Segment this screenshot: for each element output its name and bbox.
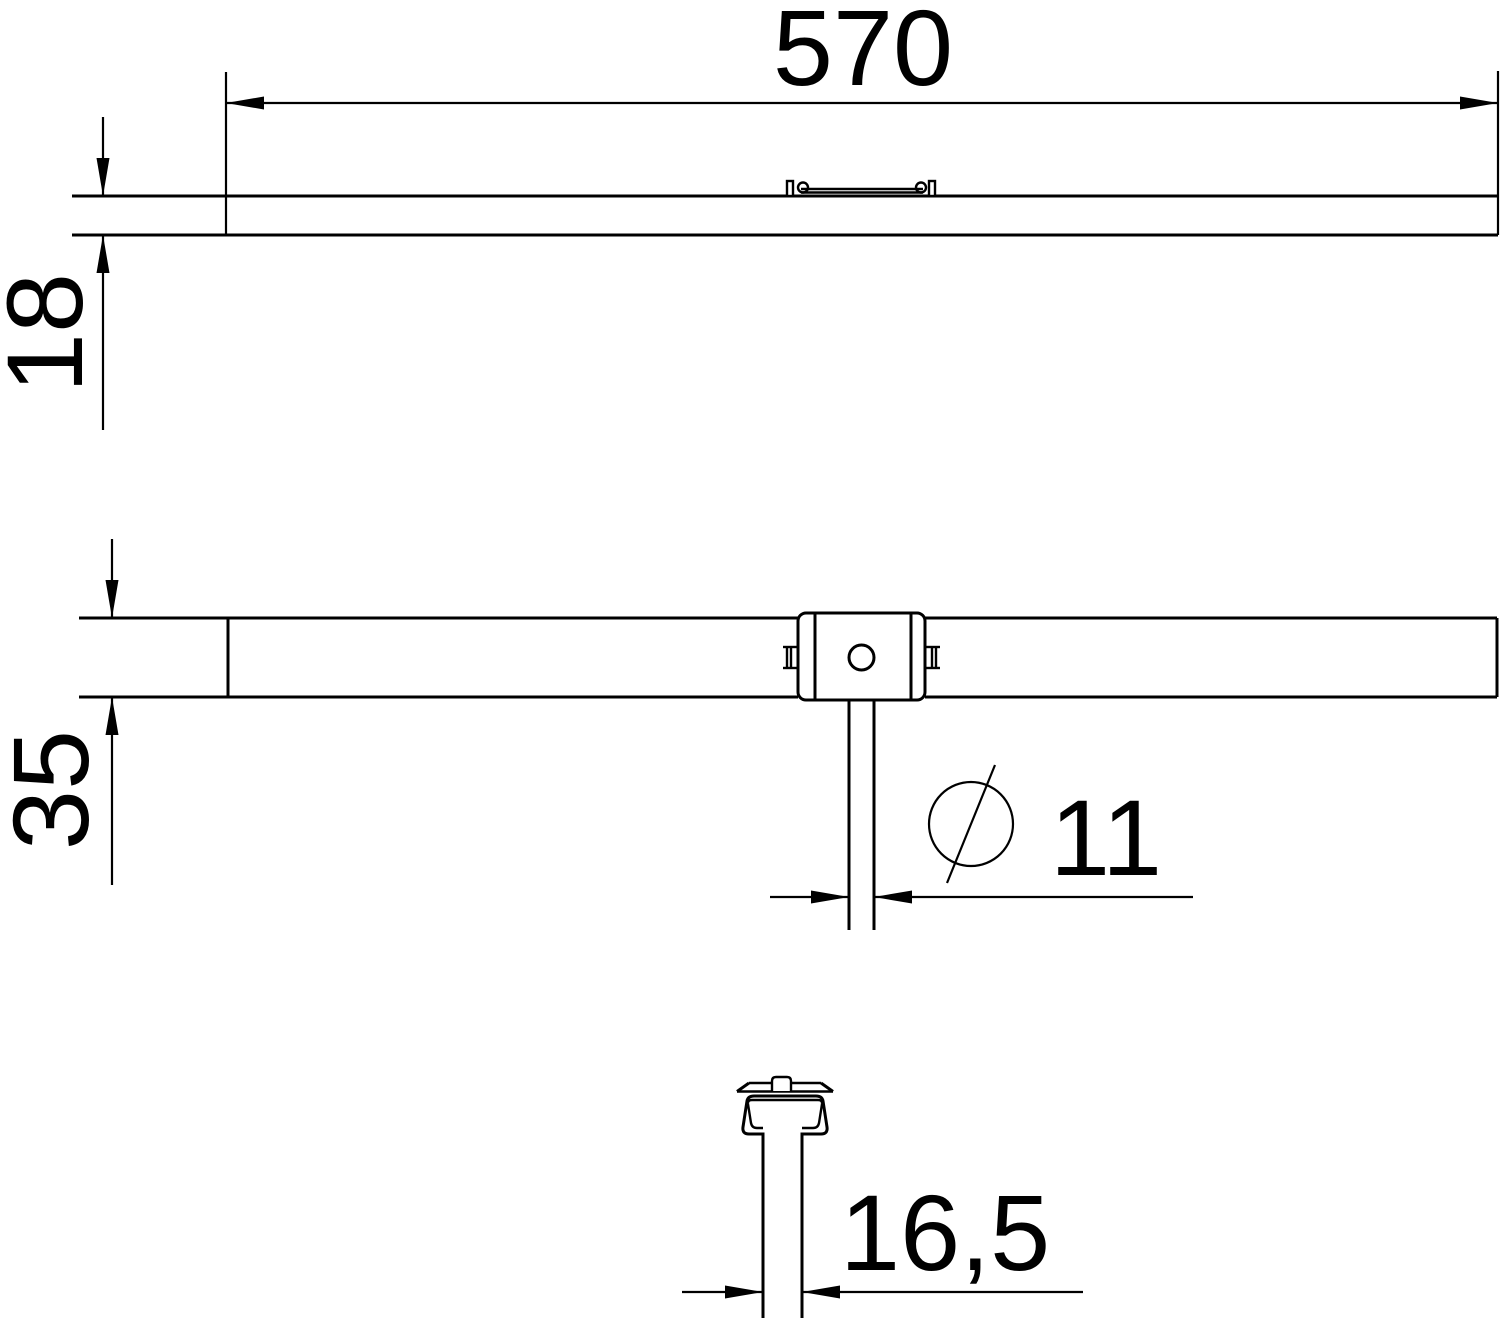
block-rod-hole: [849, 645, 874, 670]
clip-right-tab: [929, 181, 935, 196]
side-view: 570 18: [0, 0, 1498, 430]
section-profile-outer: [743, 1096, 827, 1318]
technical-drawing: 570 18: [0, 0, 1500, 1326]
dim-570-label: 570: [773, 0, 953, 108]
dim-18-label: 18: [0, 273, 105, 393]
dim-570-arrow-right: [1460, 97, 1498, 110]
dim-18-arrow-down: [97, 158, 110, 196]
diameter-symbol-icon: [929, 765, 1013, 883]
clip-left-hook: [798, 183, 808, 193]
dim-35-arrow-down: [106, 580, 119, 618]
dim-16-5: 16,5: [682, 1172, 1083, 1299]
dim-11-label: 11: [1050, 777, 1162, 898]
dim-18-arrow-up: [97, 235, 110, 273]
dim-11-arrow-right: [874, 891, 912, 904]
plan-suspension-block: [783, 613, 940, 700]
dim-16-5-arrow-left: [725, 1286, 763, 1299]
side-view-clip-detail: [787, 181, 935, 196]
dim-11-arrow-left: [811, 891, 849, 904]
block-right-screw-tab: [925, 647, 940, 668]
clip-left-tab: [787, 181, 793, 196]
clip-right-hook: [916, 183, 926, 193]
dim-16-5-label: 16,5: [840, 1172, 1050, 1293]
dim-570-arrow-left: [226, 97, 264, 110]
dim-35: 35: [0, 539, 119, 885]
dim-18: 18: [0, 117, 110, 430]
dim-35-label: 35: [0, 730, 111, 850]
drawing-canvas: 570 18: [0, 0, 1500, 1326]
section-clamp-strip: [737, 1077, 833, 1092]
block-left-screw-tab: [783, 647, 798, 668]
dim-35-arrow-up: [106, 697, 119, 735]
dim-11-diameter: 11: [770, 765, 1193, 904]
section-view: 16,5: [682, 1077, 1083, 1318]
plan-view: 11 35: [0, 539, 1497, 930]
section-profile: [743, 1096, 827, 1318]
dim-16-5-arrow-right: [802, 1286, 840, 1299]
section-clamp-tab: [772, 1077, 791, 1091]
dim-570: 570: [226, 0, 1498, 235]
